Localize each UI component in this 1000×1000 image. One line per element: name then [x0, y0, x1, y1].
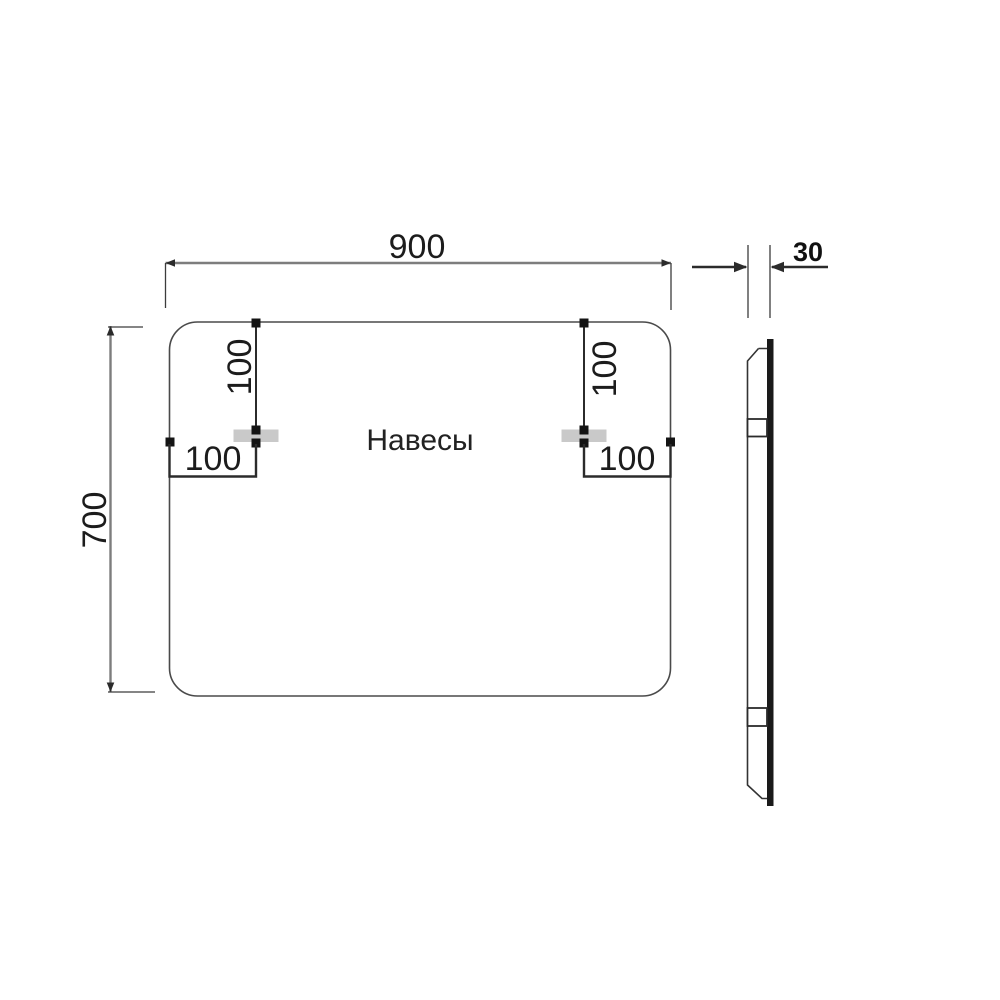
depth-dimension: 30	[692, 237, 828, 318]
left-hanger-top-offset-label: 100	[221, 339, 259, 396]
arrow-left-icon	[771, 262, 785, 272]
profile-front-outline	[748, 349, 768, 799]
right-hanger: 100 100	[562, 319, 676, 479]
side-profile	[748, 339, 774, 806]
side-view: 30	[692, 237, 828, 806]
right-hanger-side-offset-label: 100	[599, 440, 656, 478]
width-dimension-label: 900	[389, 228, 446, 266]
marker-square	[252, 426, 261, 435]
arrow-right-icon	[662, 259, 672, 267]
front-view: 900 700 100 100	[76, 228, 675, 696]
width-dimension: 900	[166, 228, 672, 310]
height-dimension-label: 700	[76, 492, 114, 549]
marker-square	[580, 426, 589, 435]
drawing-canvas: 900 700 100 100	[0, 0, 1000, 1000]
left-hanger: 100 100	[166, 319, 279, 479]
height-dimension: 700	[76, 326, 155, 692]
arrow-down-icon	[107, 683, 115, 693]
marker-square	[252, 319, 261, 328]
left-hanger-side-offset-label: 100	[185, 440, 242, 478]
hangers-label: Навесы	[366, 424, 473, 457]
marker-square	[580, 319, 589, 328]
arrow-left-icon	[166, 259, 176, 267]
right-hanger-top-offset-label: 100	[586, 341, 624, 398]
profile-back-panel	[767, 339, 774, 806]
technical-drawing: 900 700 100 100	[0, 0, 1000, 1000]
profile-hanger-top	[748, 419, 768, 437]
profile-hanger-bottom	[748, 708, 768, 726]
arrow-right-icon	[734, 262, 748, 272]
depth-dimension-label: 30	[793, 237, 823, 267]
